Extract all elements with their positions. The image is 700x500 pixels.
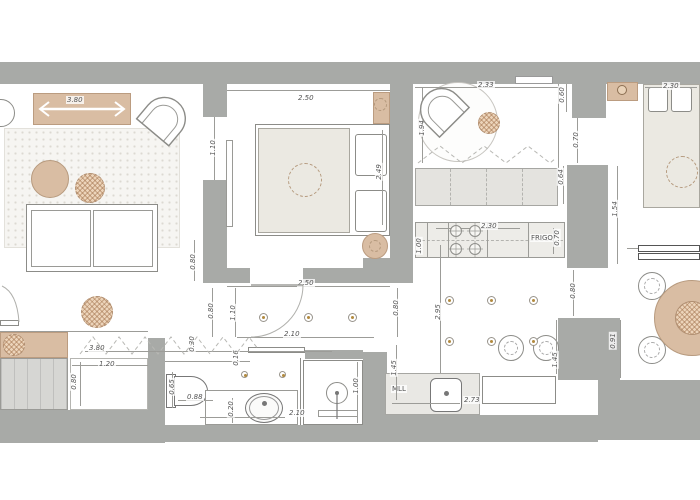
stool-decor bbox=[504, 341, 518, 355]
wall-bottom-left bbox=[0, 410, 165, 443]
dim-dining-niche: 0.60 bbox=[558, 86, 566, 104]
shower-bench bbox=[318, 410, 358, 417]
fridge-label: FRIGO bbox=[530, 234, 554, 242]
wall-bottom-right bbox=[598, 380, 700, 440]
stool-hatch bbox=[3, 334, 25, 356]
dim-console-length: 3.80 bbox=[66, 96, 84, 104]
dim-shower-width: 1.00 bbox=[352, 377, 360, 395]
wall-bedroom1-step bbox=[363, 258, 390, 277]
dim-wardrobe-depth: 0.64 bbox=[557, 168, 565, 186]
door-arc-entry bbox=[2, 286, 19, 322]
dim-hall-length: 2.10 bbox=[283, 330, 301, 338]
toilet-bowl bbox=[174, 376, 208, 406]
dim-bed2-top: 2.30 bbox=[662, 82, 680, 90]
dim-dressing-depth: 0.30 bbox=[188, 335, 196, 353]
counter-divider bbox=[528, 223, 529, 257]
dimension-line bbox=[392, 403, 460, 404]
wall-bath-kitchen bbox=[363, 352, 387, 440]
window-dining bbox=[515, 76, 553, 84]
wardrobe-striped bbox=[0, 358, 68, 410]
dimension-line bbox=[85, 351, 332, 352]
dim-bed1-bottom: 2.50 bbox=[297, 279, 315, 287]
wall-bathroom-bottom bbox=[165, 425, 387, 442]
dim-bed2-left: 1.54 bbox=[611, 200, 619, 218]
ceiling-light bbox=[529, 337, 538, 346]
desk-line bbox=[627, 248, 638, 249]
dim-passage: 0.70 bbox=[572, 131, 580, 149]
dim-dining-top: 2.33 bbox=[477, 81, 495, 89]
wardrobe-divider bbox=[522, 169, 523, 205]
wall-bedroom-kitchen bbox=[390, 62, 413, 283]
pouf bbox=[81, 296, 113, 328]
dim-hall-left: 0.80 bbox=[207, 302, 215, 320]
dim-bed1-right: 2.49 bbox=[375, 163, 383, 181]
dim-counter-left: 1.00 bbox=[415, 237, 423, 255]
wall-right-upper bbox=[572, 62, 606, 118]
dimension-line bbox=[436, 228, 520, 229]
dimension-line bbox=[566, 84, 567, 112]
dim-dressing-width: 3.80 bbox=[88, 344, 106, 352]
dim-counter-right: 0.70 bbox=[553, 229, 561, 247]
dim-closet-depth: 0.80 bbox=[70, 373, 78, 391]
wall-right-middle bbox=[567, 165, 608, 268]
wall-kitchen-bottom bbox=[385, 415, 598, 442]
dim-kitchen-length: 2.95 bbox=[434, 303, 442, 321]
dining-side-table bbox=[478, 112, 500, 134]
dim-bath-length: 2.10 bbox=[288, 409, 306, 417]
dimension-line bbox=[237, 337, 374, 338]
sofa-cushion bbox=[93, 210, 153, 267]
dim-kitchen-width: 2.73 bbox=[463, 396, 481, 404]
desk-shelf bbox=[638, 245, 700, 252]
bed2-pillow bbox=[648, 87, 668, 112]
dim-hall-right: 0.80 bbox=[392, 299, 400, 317]
lamp-icon bbox=[617, 85, 627, 95]
dim-kitchen-pass: 0.80 bbox=[569, 282, 577, 300]
dim-bath-wall: 0.16 bbox=[232, 349, 240, 367]
dim-wc-depth: 0.88 bbox=[186, 393, 204, 401]
stool-decor bbox=[369, 240, 381, 252]
ceiling-light bbox=[279, 371, 286, 378]
floor-plan: FRIGO MLL bbox=[0, 0, 700, 500]
dimension-line bbox=[200, 417, 285, 418]
bed2-pillow bbox=[671, 87, 692, 112]
dim-closet-width: 1.20 bbox=[98, 360, 116, 368]
wall-bedroom1-bottom-left bbox=[227, 268, 250, 283]
ceiling-light bbox=[445, 337, 454, 346]
dimension-line bbox=[427, 222, 428, 258]
bedroom1-panel bbox=[226, 140, 233, 227]
dim-bed1-top: 2.50 bbox=[297, 94, 315, 102]
dim-kitchen-left-gap: 1.45 bbox=[390, 359, 398, 377]
wall-living-bedroom-lower bbox=[203, 180, 227, 283]
bath-sliding-door-leaf bbox=[248, 347, 305, 353]
sofa-cushion bbox=[31, 210, 91, 267]
dimension-line bbox=[227, 90, 390, 91]
dim-sofa-gap: 0.80 bbox=[189, 253, 197, 271]
ceiling-light bbox=[487, 296, 496, 305]
dim-bath-step: 0.20 bbox=[227, 400, 235, 418]
chair-decor bbox=[644, 278, 660, 294]
ceiling-light bbox=[348, 313, 357, 322]
dim-island-gap: 1.45 bbox=[551, 351, 559, 369]
dimension-line bbox=[80, 362, 81, 406]
entry-door-leaf bbox=[0, 320, 19, 326]
chair-decor bbox=[644, 342, 660, 358]
ceiling-light bbox=[445, 296, 454, 305]
shower-drain bbox=[335, 391, 339, 395]
washing-machine-label: MLL bbox=[391, 385, 407, 393]
ceiling-light bbox=[529, 296, 538, 305]
ceiling-light bbox=[241, 371, 248, 378]
dim-table-gap: 0.91 bbox=[609, 332, 617, 350]
dim-living-opening: 1.10 bbox=[209, 139, 217, 157]
wall-living-bedroom-upper bbox=[203, 84, 227, 117]
kitchen-island bbox=[482, 376, 556, 404]
ceiling-light bbox=[259, 313, 268, 322]
bed1-decor-circle bbox=[288, 163, 322, 197]
side-table-left bbox=[0, 99, 15, 127]
ceiling-light bbox=[487, 337, 496, 346]
lamp-icon bbox=[374, 98, 387, 111]
side-table-hatch bbox=[75, 173, 105, 203]
wardrobe-divider bbox=[450, 169, 451, 205]
coffee-table bbox=[31, 160, 69, 198]
dimension-line bbox=[620, 320, 621, 378]
faucet-icon bbox=[262, 401, 267, 406]
wardrobe-divider bbox=[486, 169, 487, 205]
bed2-decor-circle bbox=[666, 156, 698, 188]
ceiling-light bbox=[304, 313, 313, 322]
dim-hall-door: 1.10 bbox=[229, 304, 237, 322]
dim-wc-width: 0.65 bbox=[168, 378, 176, 396]
desk-shelf bbox=[638, 253, 700, 260]
faucet-icon bbox=[444, 391, 449, 396]
dim-counter-length: 2.30 bbox=[480, 222, 498, 230]
dim-dining-left: 1.94 bbox=[418, 119, 426, 137]
